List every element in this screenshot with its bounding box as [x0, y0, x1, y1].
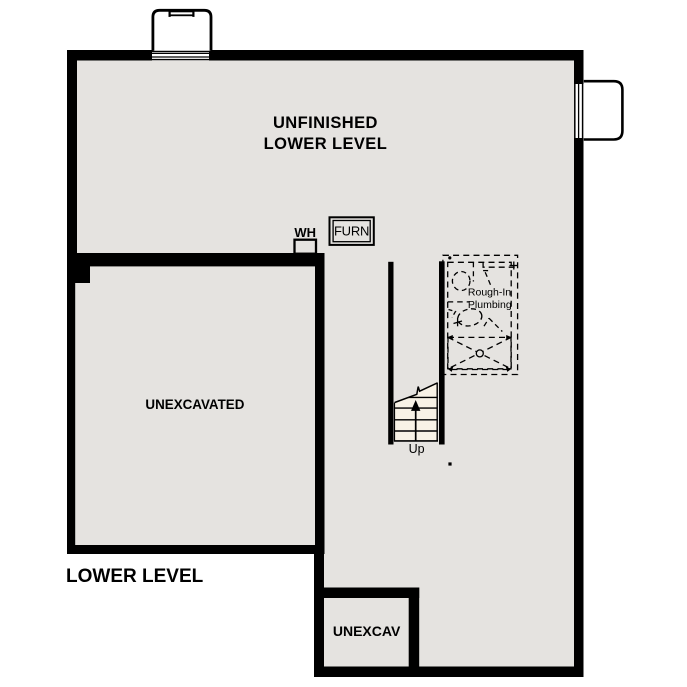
- svg-text:UNEXCAVATED: UNEXCAVATED: [145, 397, 244, 412]
- svg-text:FURN: FURN: [334, 224, 369, 239]
- svg-text:UNEXCAV: UNEXCAV: [333, 623, 401, 639]
- svg-text:UNFINISHED: UNFINISHED: [273, 114, 378, 132]
- svg-text:Plumbing: Plumbing: [468, 299, 512, 311]
- svg-text:LOWER LEVEL: LOWER LEVEL: [66, 566, 204, 587]
- svg-text:LOWER LEVEL: LOWER LEVEL: [264, 135, 388, 153]
- svg-text:Rough-In: Rough-In: [468, 287, 511, 299]
- svg-text:WH: WH: [294, 225, 316, 240]
- svg-text:Up: Up: [409, 442, 425, 456]
